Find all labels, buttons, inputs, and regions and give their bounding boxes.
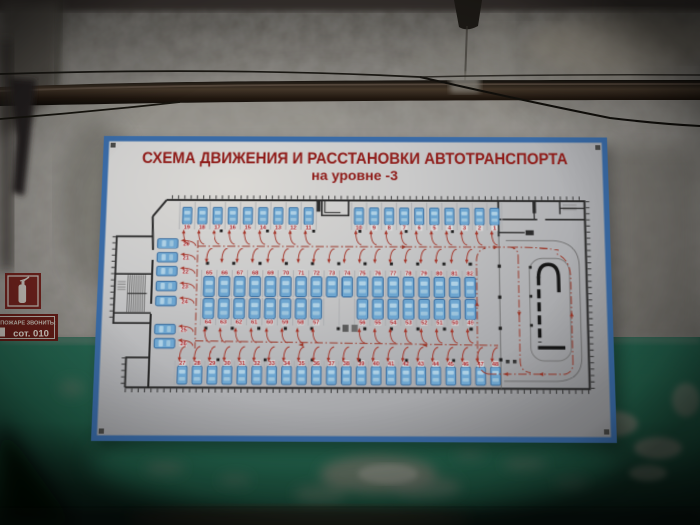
svg-text:62: 62 xyxy=(236,320,243,326)
svg-text:1: 1 xyxy=(493,226,496,232)
svg-text:81: 81 xyxy=(451,271,457,277)
svg-text:50: 50 xyxy=(452,320,458,326)
svg-text:69: 69 xyxy=(267,271,273,277)
svg-text:39: 39 xyxy=(358,361,364,367)
svg-text:77: 77 xyxy=(390,271,396,277)
svg-text:42: 42 xyxy=(403,361,409,367)
svg-text:49: 49 xyxy=(467,320,473,326)
svg-text:29: 29 xyxy=(209,361,216,367)
svg-text:34: 34 xyxy=(283,361,290,367)
svg-text:12: 12 xyxy=(290,225,296,231)
svg-text:75: 75 xyxy=(359,271,365,277)
svg-text:68: 68 xyxy=(252,271,258,277)
svg-text:35: 35 xyxy=(298,361,304,367)
svg-text:на уровне -3: на уровне -3 xyxy=(311,168,398,183)
svg-text:56: 56 xyxy=(359,320,365,326)
svg-text:76: 76 xyxy=(375,271,381,277)
svg-text:64: 64 xyxy=(205,319,212,325)
svg-text:30: 30 xyxy=(224,361,231,367)
svg-text:15: 15 xyxy=(244,225,250,231)
svg-text:32: 32 xyxy=(254,361,261,367)
svg-text:82: 82 xyxy=(467,271,473,277)
svg-text:51: 51 xyxy=(436,320,442,326)
svg-text:65: 65 xyxy=(206,270,212,276)
svg-text:55: 55 xyxy=(375,320,381,326)
svg-text:53: 53 xyxy=(405,320,411,326)
svg-text:52: 52 xyxy=(421,320,427,326)
svg-text:70: 70 xyxy=(283,271,289,277)
svg-text:24: 24 xyxy=(181,299,188,305)
svg-text:36: 36 xyxy=(313,361,319,367)
svg-text:54: 54 xyxy=(390,320,396,326)
svg-text:41: 41 xyxy=(388,361,394,367)
svg-text:38: 38 xyxy=(343,361,349,367)
svg-text:61: 61 xyxy=(251,320,258,326)
svg-text:78: 78 xyxy=(405,271,411,277)
svg-text:45: 45 xyxy=(447,361,453,367)
svg-text:46: 46 xyxy=(462,362,468,368)
svg-text:44: 44 xyxy=(432,361,438,367)
svg-text:58: 58 xyxy=(297,320,303,326)
svg-text:21: 21 xyxy=(183,255,190,261)
svg-text:63: 63 xyxy=(220,320,227,326)
svg-text:37: 37 xyxy=(328,361,334,367)
svg-text:23: 23 xyxy=(182,284,189,290)
svg-text:5: 5 xyxy=(433,226,436,232)
svg-text:2: 2 xyxy=(478,226,481,232)
svg-text:40: 40 xyxy=(373,361,379,367)
svg-text:13: 13 xyxy=(275,225,281,231)
svg-text:25: 25 xyxy=(180,327,187,333)
svg-text:19: 19 xyxy=(184,225,190,231)
svg-text:79: 79 xyxy=(421,271,427,277)
svg-text:28: 28 xyxy=(194,361,201,367)
svg-text:73: 73 xyxy=(329,271,335,277)
svg-text:27: 27 xyxy=(179,361,186,367)
svg-text:31: 31 xyxy=(239,361,246,367)
svg-text:СХЕМА ДВИЖЕНИЯ И РАССТАНОВКИ А: СХЕМА ДВИЖЕНИЯ И РАССТАНОВКИ АВТОТРАНСПО… xyxy=(142,149,568,168)
svg-text:80: 80 xyxy=(436,271,442,277)
svg-text:18: 18 xyxy=(199,225,205,231)
svg-text:67: 67 xyxy=(237,270,243,276)
svg-text:17: 17 xyxy=(214,225,220,231)
svg-text:16: 16 xyxy=(229,225,235,231)
svg-text:48: 48 xyxy=(492,362,499,368)
svg-text:6: 6 xyxy=(418,226,421,232)
svg-text:66: 66 xyxy=(221,270,227,276)
svg-text:57: 57 xyxy=(313,320,319,326)
svg-text:71: 71 xyxy=(298,271,304,277)
svg-text:8: 8 xyxy=(388,225,391,231)
svg-text:72: 72 xyxy=(313,271,319,277)
svg-text:59: 59 xyxy=(282,320,288,326)
svg-text:33: 33 xyxy=(269,361,276,367)
svg-text:4: 4 xyxy=(448,226,451,232)
svg-text:43: 43 xyxy=(418,361,424,367)
svg-text:3: 3 xyxy=(463,226,466,232)
svg-text:60: 60 xyxy=(266,320,272,326)
svg-text:14: 14 xyxy=(260,225,266,231)
svg-text:22: 22 xyxy=(182,269,189,275)
svg-text:26: 26 xyxy=(180,341,187,347)
svg-text:9: 9 xyxy=(372,225,375,231)
svg-text:11: 11 xyxy=(305,225,311,231)
svg-text:74: 74 xyxy=(344,271,350,277)
